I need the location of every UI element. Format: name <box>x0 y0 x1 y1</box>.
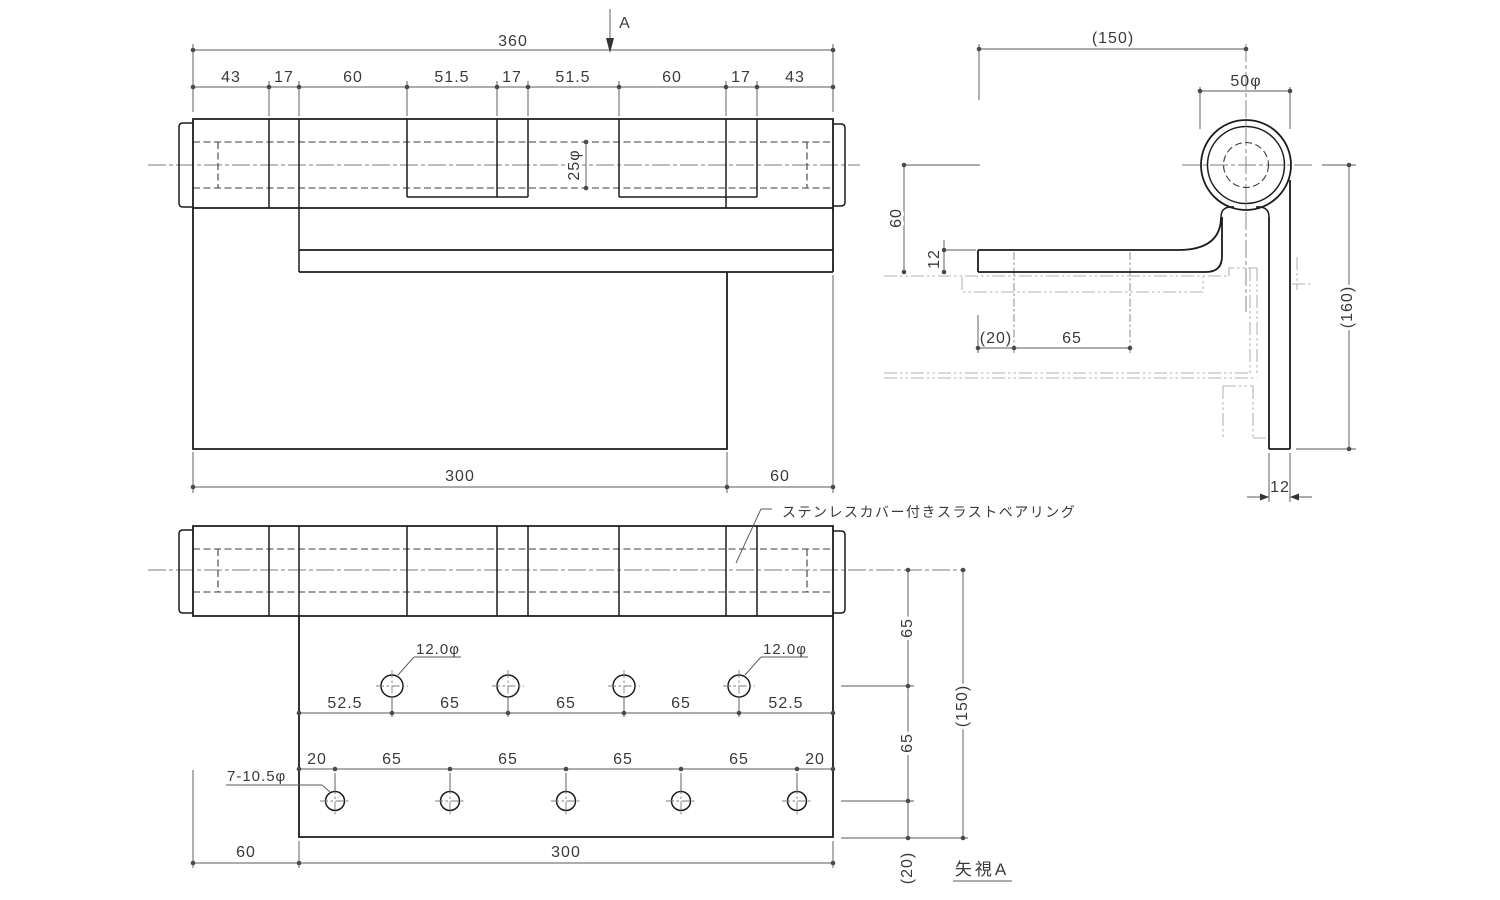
bottom-dimension-dots <box>191 568 966 866</box>
side-view: (150) 50φ 60 12 (20) 65 (160) 12 <box>884 30 1356 502</box>
dim-row2-5: 65 <box>729 751 749 768</box>
dim-row2-2: 65 <box>382 751 402 768</box>
hole-label-2: 12.0φ <box>763 641 807 658</box>
bottom-dimension-lines <box>193 509 968 868</box>
dim-bottom-width: 300 <box>551 844 581 861</box>
hinge-drawing: 360 43 17 60 51.5 17 51.5 60 17 43 25φ 3… <box>0 0 1500 900</box>
dim-row1-2: 65 <box>440 695 460 712</box>
dim-row2-4: 65 <box>613 751 633 768</box>
dim-front-seg-9: 43 <box>785 69 805 86</box>
dim-pin-dia: 25φ <box>566 149 583 180</box>
dim-row1-3: 65 <box>556 695 576 712</box>
dim-front-seg-3: 60 <box>343 69 363 86</box>
drawing-sheet: 360 43 17 60 51.5 17 51.5 60 17 43 25φ 3… <box>0 0 1500 900</box>
dim-front-plate-offset: 60 <box>770 468 790 485</box>
dim-side-150: (150) <box>954 685 971 727</box>
dim-side-65a: 65 <box>899 618 916 638</box>
dim-front-seg-5: 17 <box>502 69 522 86</box>
dim-leaf-length: (160) <box>1339 286 1356 328</box>
dim-row2-6: 20 <box>805 751 825 768</box>
dim-row2-3: 65 <box>498 751 518 768</box>
dim-front-seg-6: 51.5 <box>555 69 590 86</box>
hole-note: 7-10.5φ <box>227 768 286 785</box>
hole-label-1: 12.0φ <box>416 641 460 658</box>
side-dimension-dots <box>902 47 1352 452</box>
bolt-holes-row1 <box>381 675 750 697</box>
side-arm-outline <box>978 217 1222 272</box>
dim-front-overall: 360 <box>498 33 528 50</box>
side-phantom-door-frame <box>884 257 1312 438</box>
bottom-hidden-bore <box>193 549 833 592</box>
front-frame-wing-band <box>299 208 833 272</box>
dim-side-65b: 65 <box>899 733 916 753</box>
bottom-view: 12.0φ 12.0φ 52.5 65 65 65 52.5 20 65 65 … <box>148 504 1076 884</box>
bottom-barrel-outline <box>193 526 833 616</box>
front-barrel-outline <box>193 119 833 208</box>
front-dimension-dots <box>191 48 836 490</box>
dim-side-hole-pitch: 65 <box>1062 330 1082 347</box>
front-view: 360 43 17 60 51.5 17 51.5 60 17 43 25φ 3… <box>148 9 860 493</box>
dim-side-drop: 60 <box>888 208 905 228</box>
dim-arm-thickness: 12 <box>926 249 943 269</box>
view-ref-label: 矢視A <box>955 860 1009 879</box>
dim-knuckle-dia: 50φ <box>1230 73 1261 90</box>
dim-leaf-thickness: 12 <box>1270 479 1290 496</box>
dim-row1-5: 52.5 <box>768 695 803 712</box>
dim-front-seg-1: 43 <box>221 69 241 86</box>
dim-front-seg-7: 60 <box>662 69 682 86</box>
dim-side-reach: (150) <box>1092 30 1134 47</box>
bearing-note: ステンレスカバー付きスラストベアリング <box>782 504 1076 520</box>
section-arrow-icon <box>606 38 614 53</box>
side-saddle-fillets <box>1221 207 1269 217</box>
side-dimension-lines <box>903 44 1356 502</box>
leaf-thickness-arrow-right-icon <box>1290 494 1299 501</box>
dim-front-plate-width: 300 <box>445 468 475 485</box>
bottom-knuckle-divisions <box>269 526 757 616</box>
leaf-thickness-arrow-left-icon <box>1260 494 1269 501</box>
dim-front-seg-4: 51.5 <box>434 69 469 86</box>
dim-front-seg-8: 17 <box>731 69 751 86</box>
side-leaf-plate <box>1269 180 1290 449</box>
dim-row2-1: 20 <box>307 751 327 768</box>
section-label: A <box>619 15 631 32</box>
dim-front-seg-2: 17 <box>274 69 294 86</box>
dim-bottom-offset: 60 <box>236 844 256 861</box>
front-door-plate <box>193 208 727 449</box>
hole-crosshairs <box>320 670 812 816</box>
dim-row1-4: 65 <box>671 695 691 712</box>
dim-side-edge-offset: (20) <box>980 330 1012 347</box>
dim-row1-1: 52.5 <box>327 695 362 712</box>
dim-side-20: (20) <box>899 852 916 884</box>
